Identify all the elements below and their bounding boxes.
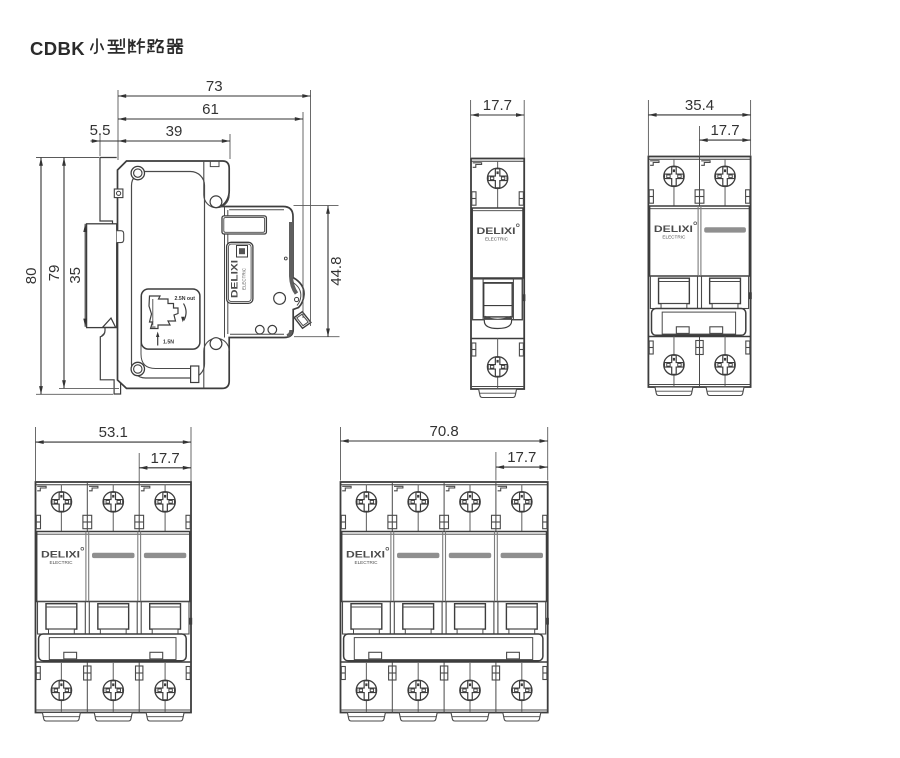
svg-text:53.1: 53.1 [99, 424, 128, 441]
svg-text:70.8: 70.8 [429, 423, 458, 440]
svg-text:ELECTRIC: ELECTRIC [50, 560, 73, 565]
svg-text:DELIXI: DELIXI [654, 223, 693, 234]
svg-text:17.7: 17.7 [483, 97, 512, 114]
svg-text:80: 80 [23, 268, 40, 285]
svg-text:ELECTRIC: ELECTRIC [485, 237, 508, 242]
svg-text:2.5N out: 2.5N out [175, 296, 196, 302]
svg-text:CDBK: CDBK [30, 38, 85, 59]
svg-text:44.8: 44.8 [328, 257, 345, 286]
svg-text:DELIXI: DELIXI [477, 225, 516, 236]
svg-text:ELECTRIC: ELECTRIC [355, 560, 378, 565]
svg-text:ELECTRIC: ELECTRIC [241, 268, 246, 290]
svg-text:73: 73 [206, 78, 223, 95]
svg-text:17.7: 17.7 [710, 122, 739, 139]
svg-text:79: 79 [46, 265, 63, 282]
svg-text:ELECTRIC: ELECTRIC [662, 235, 685, 240]
svg-text:DELIXI: DELIXI [346, 549, 385, 560]
svg-text:17.7: 17.7 [507, 449, 536, 466]
svg-text:61: 61 [202, 101, 219, 118]
svg-text:35: 35 [67, 267, 84, 284]
svg-text:35.4: 35.4 [685, 97, 714, 114]
svg-text:17.7: 17.7 [150, 450, 179, 467]
svg-text:DELIXI: DELIXI [229, 260, 239, 298]
svg-text:1.5N: 1.5N [163, 339, 174, 345]
svg-text:5.5: 5.5 [90, 122, 111, 139]
svg-text:39: 39 [166, 123, 183, 140]
svg-text:DELIXI: DELIXI [41, 549, 80, 560]
